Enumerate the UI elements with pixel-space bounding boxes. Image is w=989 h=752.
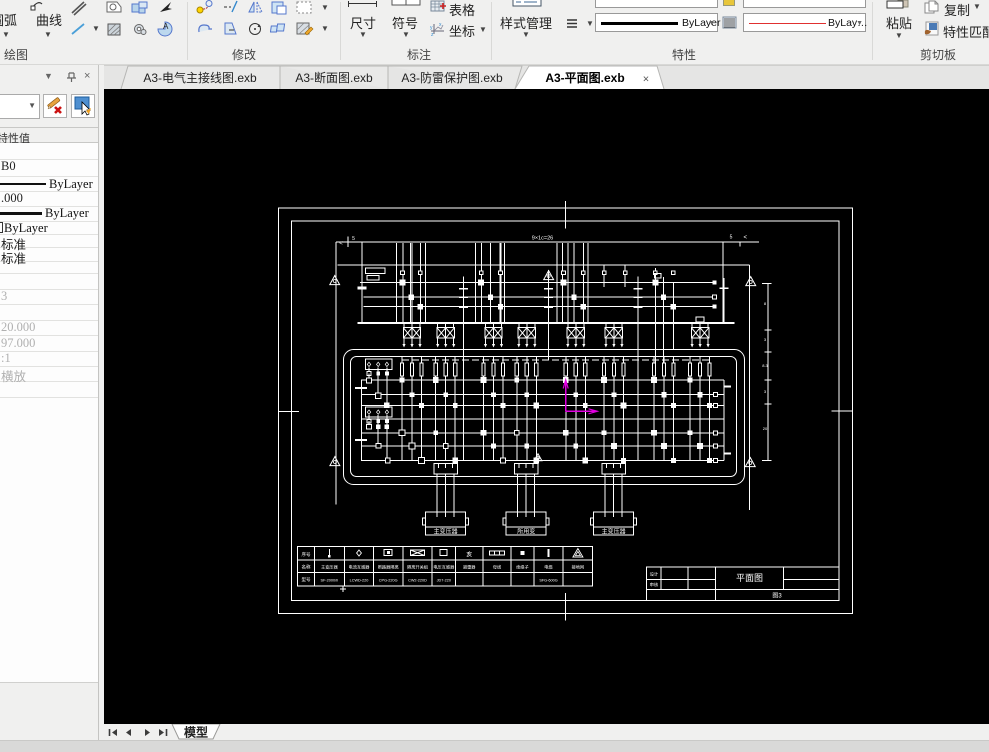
svg-text:<: <	[339, 241, 343, 247]
svg-text:电缆: 电缆	[544, 564, 553, 571]
svg-text:亥: 亥	[466, 551, 472, 559]
svg-text:接地网: 接地网	[572, 564, 585, 571]
svg-text:隔离开关组: 隔离开关组	[407, 564, 428, 571]
svg-text:断路器隔离: 断路器隔离	[378, 564, 399, 571]
svg-text:模型: 模型	[184, 725, 208, 740]
svg-text:5: 5	[352, 236, 355, 242]
svg-text:平面图: 平面图	[736, 573, 763, 583]
svg-text:A3-防雷保护图.exb: A3-防雷保护图.exb	[401, 70, 503, 85]
svg-text:3: 3	[764, 389, 767, 394]
svg-text:序号: 序号	[302, 551, 311, 558]
svg-text:3: 3	[764, 337, 767, 342]
svg-text:绝缘子: 绝缘子	[516, 564, 529, 570]
svg-text:避雷器: 避雷器	[463, 564, 476, 571]
svg-text:设计: 设计	[650, 571, 658, 578]
svg-text:20: 20	[763, 426, 768, 431]
svg-text:JD7-220: JD7-220	[437, 579, 451, 583]
svg-text:9×1c=26: 9×1c=26	[532, 236, 553, 242]
svg-text:A3-电气主接线图.exb: A3-电气主接线图.exb	[143, 70, 257, 85]
svg-text:LCWD-220: LCWD-220	[350, 579, 369, 583]
svg-text:5: 5	[730, 235, 733, 241]
svg-text:电流互感器: 电流互感器	[349, 564, 371, 571]
svg-text:主变压器: 主变压器	[434, 528, 458, 536]
svg-text:8: 8	[764, 301, 767, 306]
svg-text:×: ×	[643, 74, 649, 86]
svg-text:SFG-600G: SFG-600G	[539, 579, 557, 583]
svg-text:A3-平面图.exb: A3-平面图.exb	[545, 71, 624, 85]
svg-text:<: <	[743, 235, 747, 241]
svg-text:CW2-220D: CW2-220D	[408, 579, 427, 583]
svg-text:图3: 图3	[772, 593, 782, 600]
svg-text:8.3: 8.3	[762, 363, 768, 368]
svg-text:主变压器: 主变压器	[321, 564, 339, 571]
svg-text:电压互感器: 电压互感器	[433, 564, 455, 571]
svg-text:A: A	[163, 22, 169, 31]
svg-text:所用变: 所用变	[517, 528, 535, 536]
svg-text:母线: 母线	[493, 564, 502, 571]
svg-text:名称: 名称	[302, 564, 311, 571]
svg-text:CPG-220G: CPG-220G	[379, 579, 398, 583]
svg-text:主变压器: 主变压器	[602, 528, 626, 536]
svg-text:SF-2000/II: SF-2000/II	[321, 579, 339, 583]
svg-text:型号: 型号	[302, 576, 311, 583]
svg-text:A3-断面图.exb: A3-断面图.exb	[295, 70, 373, 85]
svg-text:y: y	[430, 25, 433, 31]
svg-text:审核: 审核	[650, 581, 659, 588]
